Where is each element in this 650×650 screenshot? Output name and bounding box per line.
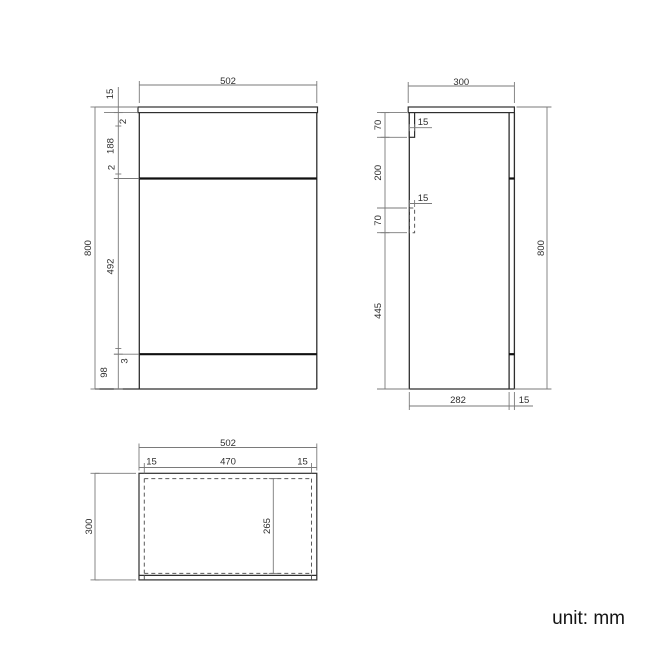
front-worktop	[138, 107, 318, 113]
dim-front-bottom-gap: 3	[120, 358, 131, 363]
side-bracket-upper	[409, 113, 414, 138]
dim-side-lower-bracket-height: 70	[373, 215, 384, 226]
dim-top-interior-depth: 265	[262, 518, 273, 534]
dim-front-top-gap: 2	[118, 119, 129, 124]
side-worktop	[408, 107, 514, 113]
side-bracket-lower	[409, 208, 414, 233]
dim-front-width: 502	[220, 76, 236, 87]
dim-side-depth: 300	[453, 77, 469, 88]
dim-side-total-height: 800	[536, 240, 547, 256]
top-outline	[139, 473, 317, 580]
dim-side-upper-bracket-height: 70	[373, 120, 384, 131]
unit-label: unit: mm	[552, 608, 625, 629]
front-dimension-lines	[91, 81, 317, 389]
dim-top-width: 502	[220, 438, 236, 449]
front-view: 502 800 15 2 188 2 492 3 98	[83, 76, 318, 389]
drawing-svg: 502 800 15 2 188 2 492 3 98	[0, 0, 650, 650]
dim-side-lower-bracket-width: 15	[418, 193, 429, 204]
dim-front-plinth-height: 98	[99, 367, 110, 378]
dim-top-depth: 300	[84, 519, 95, 535]
dim-side-back-panel-thickness: 15	[519, 395, 530, 406]
dim-front-drawer-height: 188	[106, 138, 117, 154]
technical-drawing: 502 800 15 2 188 2 492 3 98	[0, 0, 650, 650]
dim-top-interior-width: 470	[220, 457, 236, 468]
side-dimension-lines	[377, 82, 552, 410]
dim-front-mid-gap: 2	[107, 165, 118, 170]
dim-front-total-height: 800	[83, 240, 94, 256]
dim-top-left-panel: 15	[146, 457, 157, 468]
dim-front-worktop-thickness: 15	[105, 89, 116, 100]
top-view: 502 15 470 15 300 265	[84, 438, 317, 580]
dim-side-body-depth: 282	[450, 395, 466, 406]
side-view: 300 15 15 70 200 70 445 800 282 15	[373, 77, 552, 410]
dim-side-bracket-spacing: 200	[373, 165, 384, 181]
dim-side-lower-section-height: 445	[373, 303, 384, 319]
dim-top-right-panel: 15	[297, 457, 308, 468]
dim-side-upper-bracket-width: 15	[418, 117, 429, 128]
dim-front-door-height: 492	[106, 259, 117, 275]
